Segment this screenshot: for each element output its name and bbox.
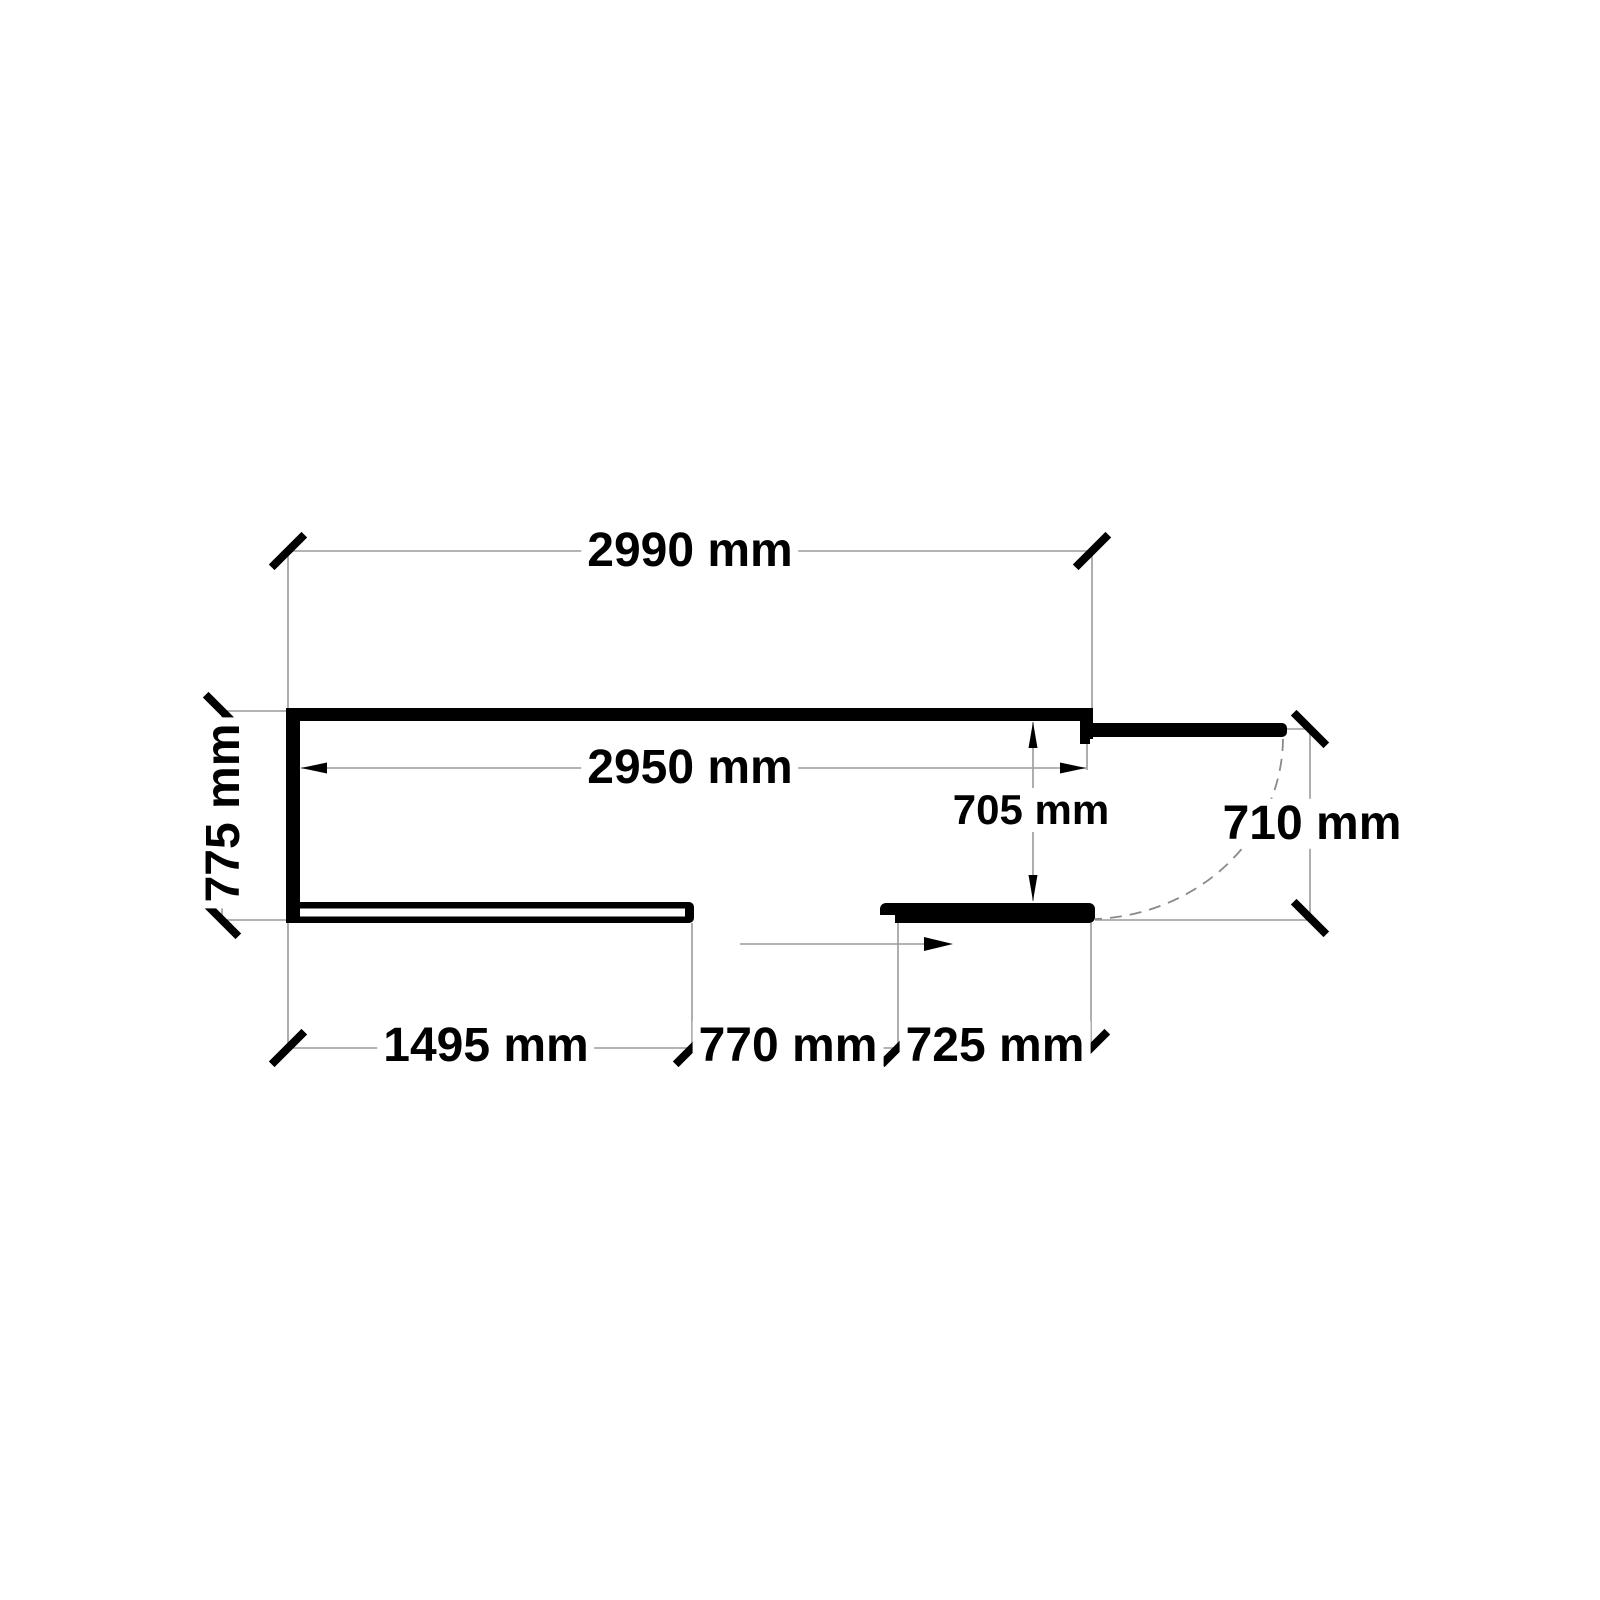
arrowhead-passage-right xyxy=(924,937,953,951)
dim-label-770: 770 mm xyxy=(693,1021,884,1071)
arrowhead-2950-right xyxy=(1060,763,1086,774)
floor-plan-canvas: 2990 mm 2950 mm 775 mm 705 mm 710 mm 149… xyxy=(0,0,1600,1600)
arrowhead-705-down xyxy=(1029,875,1038,901)
wall-top xyxy=(286,708,1093,721)
dim-label-1495: 1495 mm xyxy=(377,1021,594,1071)
wall-bottom-right xyxy=(880,903,1095,923)
arrowhead-2950-left xyxy=(301,763,327,774)
wall-left xyxy=(286,708,300,923)
wall-step-notch xyxy=(1080,737,1090,744)
wall-bottom-right-notch xyxy=(878,915,895,924)
dim-label-710: 710 mm xyxy=(1217,799,1408,849)
wall-bottom-left-inner-stripe xyxy=(300,909,685,917)
dim-label-705: 705 mm xyxy=(949,788,1113,832)
wall-right-door-leaf xyxy=(1080,723,1287,737)
dim-label-2950: 2950 mm xyxy=(581,743,798,793)
arrowhead-705-up xyxy=(1029,722,1038,748)
dim-label-2990: 2990 mm xyxy=(581,526,798,576)
dim-label-725: 725 mm xyxy=(900,1021,1091,1071)
dim-label-775: 775 mm xyxy=(199,718,249,909)
